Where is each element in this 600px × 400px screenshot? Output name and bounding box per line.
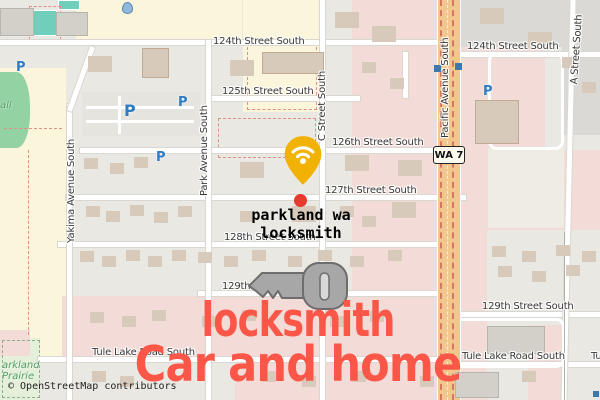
street-label-124th-west: 124th Street South: [213, 36, 305, 47]
poi-label: parkland wa locksmith: [201, 206, 401, 242]
parking-icon: P: [156, 150, 166, 165]
poi-label-line2: locksmith: [201, 224, 401, 242]
zone-cream-top-a: [76, 0, 242, 40]
street-label-pacific-avenue: Pacific Avenue South: [440, 38, 451, 138]
street-label-124th-east: 124th Street South: [467, 41, 559, 52]
dashed-trail-horizontal: [4, 128, 62, 130]
building-top-left: [0, 8, 34, 36]
prairie-name-line1: arkland: [2, 360, 40, 371]
transit-stop-icon: [593, 391, 599, 397]
road-126th: [80, 148, 460, 153]
street-label-126th: 126th Street South: [332, 137, 424, 148]
parking-icon: P: [178, 95, 188, 110]
building-large-east: [475, 100, 519, 144]
parking-icon: P: [124, 101, 136, 120]
boundary-line: [564, 232, 565, 400]
building-wide: [262, 52, 324, 74]
street-label-park-avenue: Park Avenue South: [199, 105, 210, 196]
dashed-trail-vertical: [28, 150, 30, 335]
locksmith-pin[interactable]: [281, 134, 325, 186]
building-tower: [142, 48, 169, 78]
transit-stop-icon: [455, 63, 462, 70]
street-label-129th-east: 129th Street South: [482, 301, 574, 312]
road-minor-1: [403, 52, 408, 98]
street-label-127th: 127th Street South: [325, 185, 417, 196]
street-label-125th: 125th Street South: [222, 86, 314, 97]
map-attribution[interactable]: © OpenStreetMap contributors: [8, 381, 177, 392]
road-129th-east: [459, 312, 600, 317]
poi-label-line1: parkland wa: [201, 206, 401, 224]
park-name-partial: all: [0, 100, 12, 111]
parking-icon: P: [483, 84, 493, 99]
pin-icon: [281, 134, 325, 186]
building-top-left-2: [56, 12, 88, 36]
street-label-tule-partial: Tu: [591, 351, 600, 362]
parking-icon: P: [16, 60, 26, 75]
parking-aisle-3: [118, 96, 121, 134]
street-label-yakima: Yakima Avenue South: [66, 139, 77, 243]
route-badge-wa7: WA 7: [433, 146, 465, 164]
street-label-c-street: C Street South: [317, 71, 328, 141]
parking-aisle-2: [86, 120, 194, 123]
zone-open-lot: [488, 148, 564, 228]
tennis-court-partial: [58, 0, 80, 10]
water-drop-icon: [122, 2, 133, 14]
map-canvas[interactable]: P P P P P 124th Street South 124th Stree…: [0, 0, 600, 400]
